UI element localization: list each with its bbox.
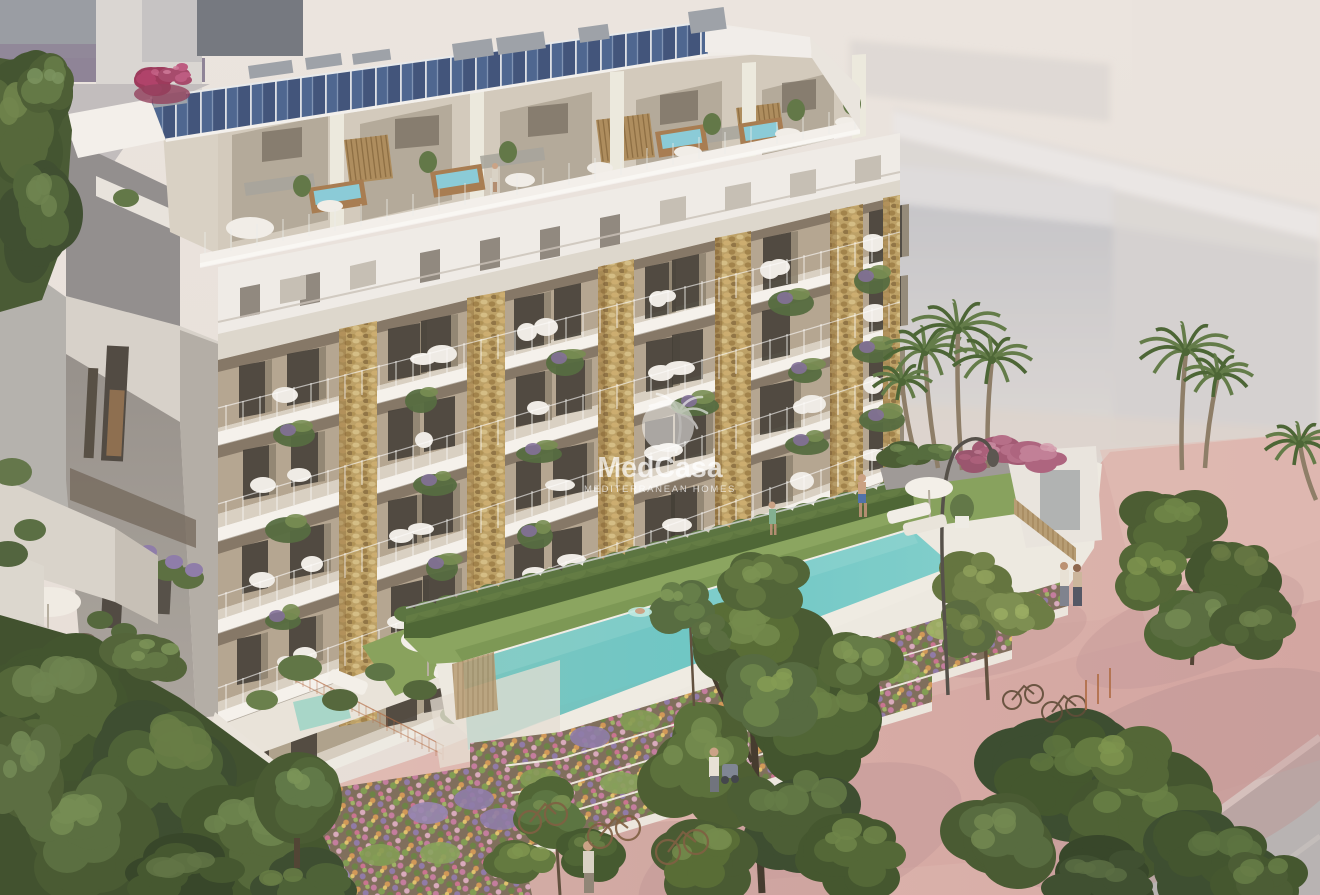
svg-text:MedCasa: MedCasa <box>597 452 723 484</box>
svg-text:MEDITERRANEAN HOMES: MEDITERRANEAN HOMES <box>584 484 736 495</box>
